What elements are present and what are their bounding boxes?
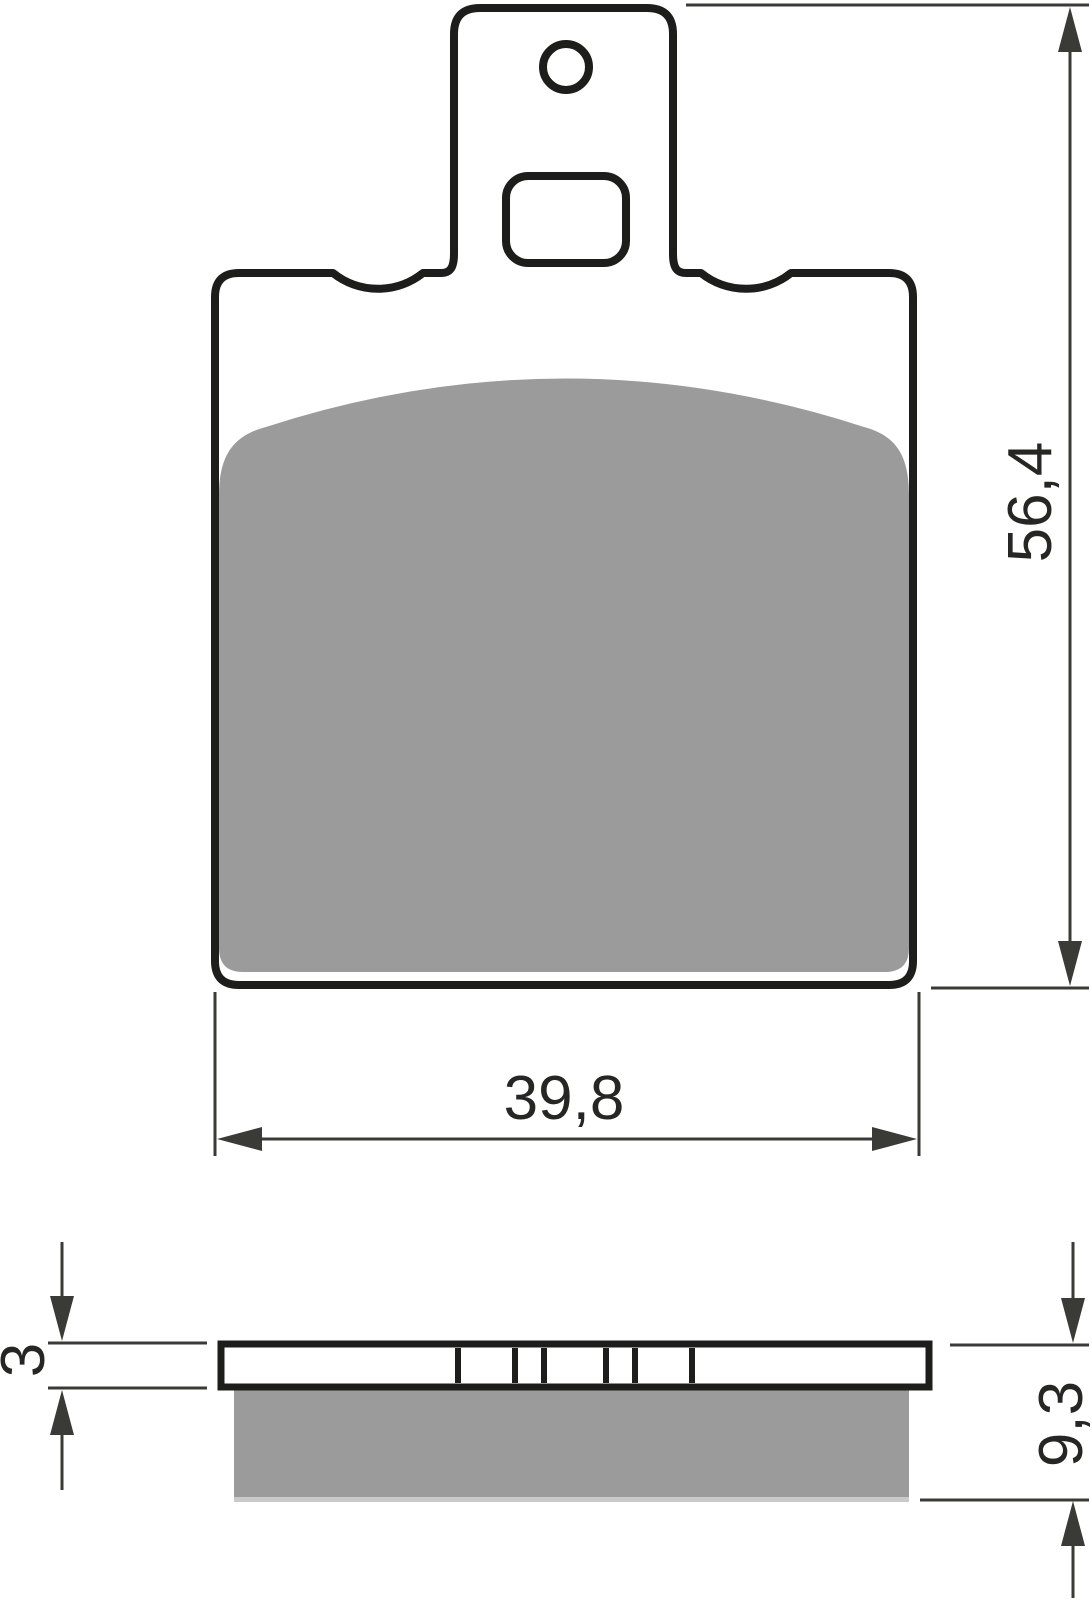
friction-pad-front [219, 379, 909, 973]
brake-pad-technical-drawing: 56,4 39,8 3 9,3 [0, 0, 1092, 1600]
tab-slot-hole [506, 176, 626, 263]
front-view [215, 8, 913, 985]
height-arrow-down [1058, 941, 1082, 986]
friction-pad-side-bottom-edge [234, 1497, 909, 1502]
width-arrow-right [872, 1127, 917, 1151]
friction-pad-side [234, 1390, 909, 1500]
width-arrow-left [217, 1127, 262, 1151]
side-view [221, 1344, 929, 1502]
total-arrow-down [1061, 1298, 1085, 1343]
tab-round-hole [543, 44, 589, 90]
drawing-svg [0, 0, 1092, 1600]
plate-thickness-label: 3 [0, 1343, 55, 1377]
plate-arrow-up [50, 1390, 74, 1435]
backplate-side [221, 1344, 929, 1387]
plate-arrow-down [50, 1296, 74, 1341]
height-arrow-up [1058, 7, 1082, 52]
height-dimension-label: 56,4 [1000, 442, 1062, 563]
width-dimension-label: 39,8 [504, 1068, 625, 1130]
total-thickness-label: 9,3 [1031, 1381, 1092, 1467]
total-arrow-up [1061, 1501, 1085, 1546]
